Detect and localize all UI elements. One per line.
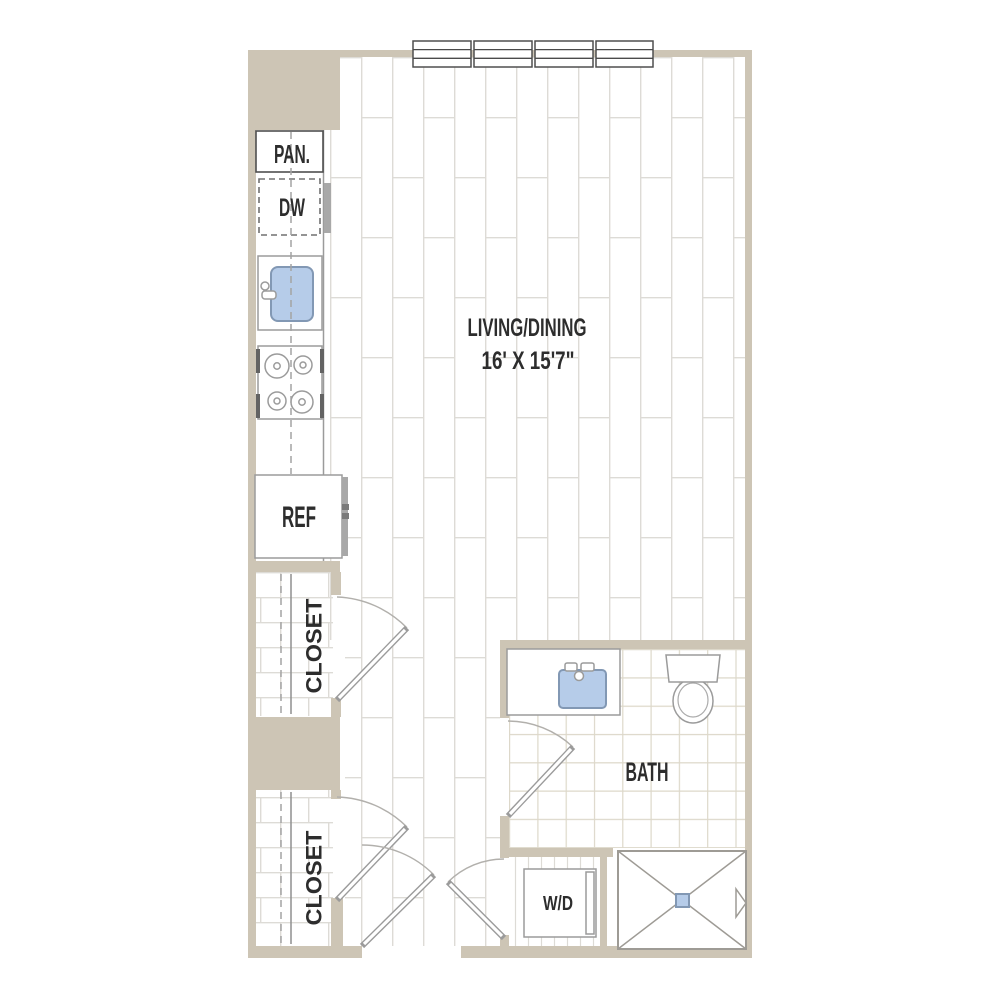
dishwasher-label: DW — [279, 194, 305, 222]
kitchen-sink — [271, 267, 313, 321]
bath-faucet-spout — [575, 672, 584, 681]
window-4 — [596, 41, 653, 67]
stove-box — [258, 346, 322, 419]
living-dining-size-label: 16' X 15'7" — [482, 347, 575, 375]
bath-faucet-left — [565, 663, 577, 671]
bath-label: BATH — [626, 757, 669, 787]
upper-closet-label: CLOSET — [302, 598, 327, 694]
floor-plan-svg: PAN. DW REF CLOSET CLOSET LIVING/DINING … — [0, 0, 1000, 1000]
wall-corner-block — [248, 50, 340, 130]
refrigerator-label: REF — [282, 501, 316, 534]
bath-faucet-right — [581, 663, 594, 671]
washer-dryer-label: W/D — [543, 893, 573, 915]
wall-laundry-top — [500, 848, 613, 857]
lower-closet-label: CLOSET — [302, 830, 327, 926]
living-dining-label: LIVING/DINING — [468, 314, 587, 342]
window-1 — [413, 41, 471, 67]
washer-dryer-door-bar — [586, 872, 594, 934]
kitchen-faucet-icon — [261, 282, 269, 290]
jamb-lower-closet-bottom — [331, 898, 343, 946]
hall-floor — [345, 640, 500, 946]
wall-mid-block — [248, 717, 340, 790]
wall-bottom-left — [248, 946, 362, 958]
window-3 — [535, 41, 593, 67]
window-2 — [474, 41, 532, 67]
pantry-label: PAN. — [274, 139, 310, 169]
wall-bath-top — [500, 640, 745, 649]
wall-right — [745, 50, 752, 958]
wall-laundry-shower-divider — [600, 850, 607, 946]
jamb-upper-closet-top — [331, 572, 341, 595]
stove-trim-left-bottom — [256, 394, 260, 418]
refrigerator-handle — [342, 504, 349, 510]
toilet-tank — [666, 655, 720, 682]
wall-kitchen-closet-divider — [248, 561, 340, 572]
stove-trim-left-top — [256, 349, 260, 373]
stove-trim-right-bottom — [320, 394, 324, 418]
shower-drain — [676, 894, 689, 907]
kitchen-faucet-spout — [262, 291, 276, 299]
floor-plan: PAN. DW REF CLOSET CLOSET LIVING/DINING … — [0, 0, 1000, 1000]
bathroom — [507, 649, 720, 723]
shower — [618, 851, 746, 949]
stove-trim-right-top — [320, 349, 324, 373]
refrigerator-handle-2 — [342, 513, 349, 519]
dishwasher-door-bar — [324, 183, 331, 233]
